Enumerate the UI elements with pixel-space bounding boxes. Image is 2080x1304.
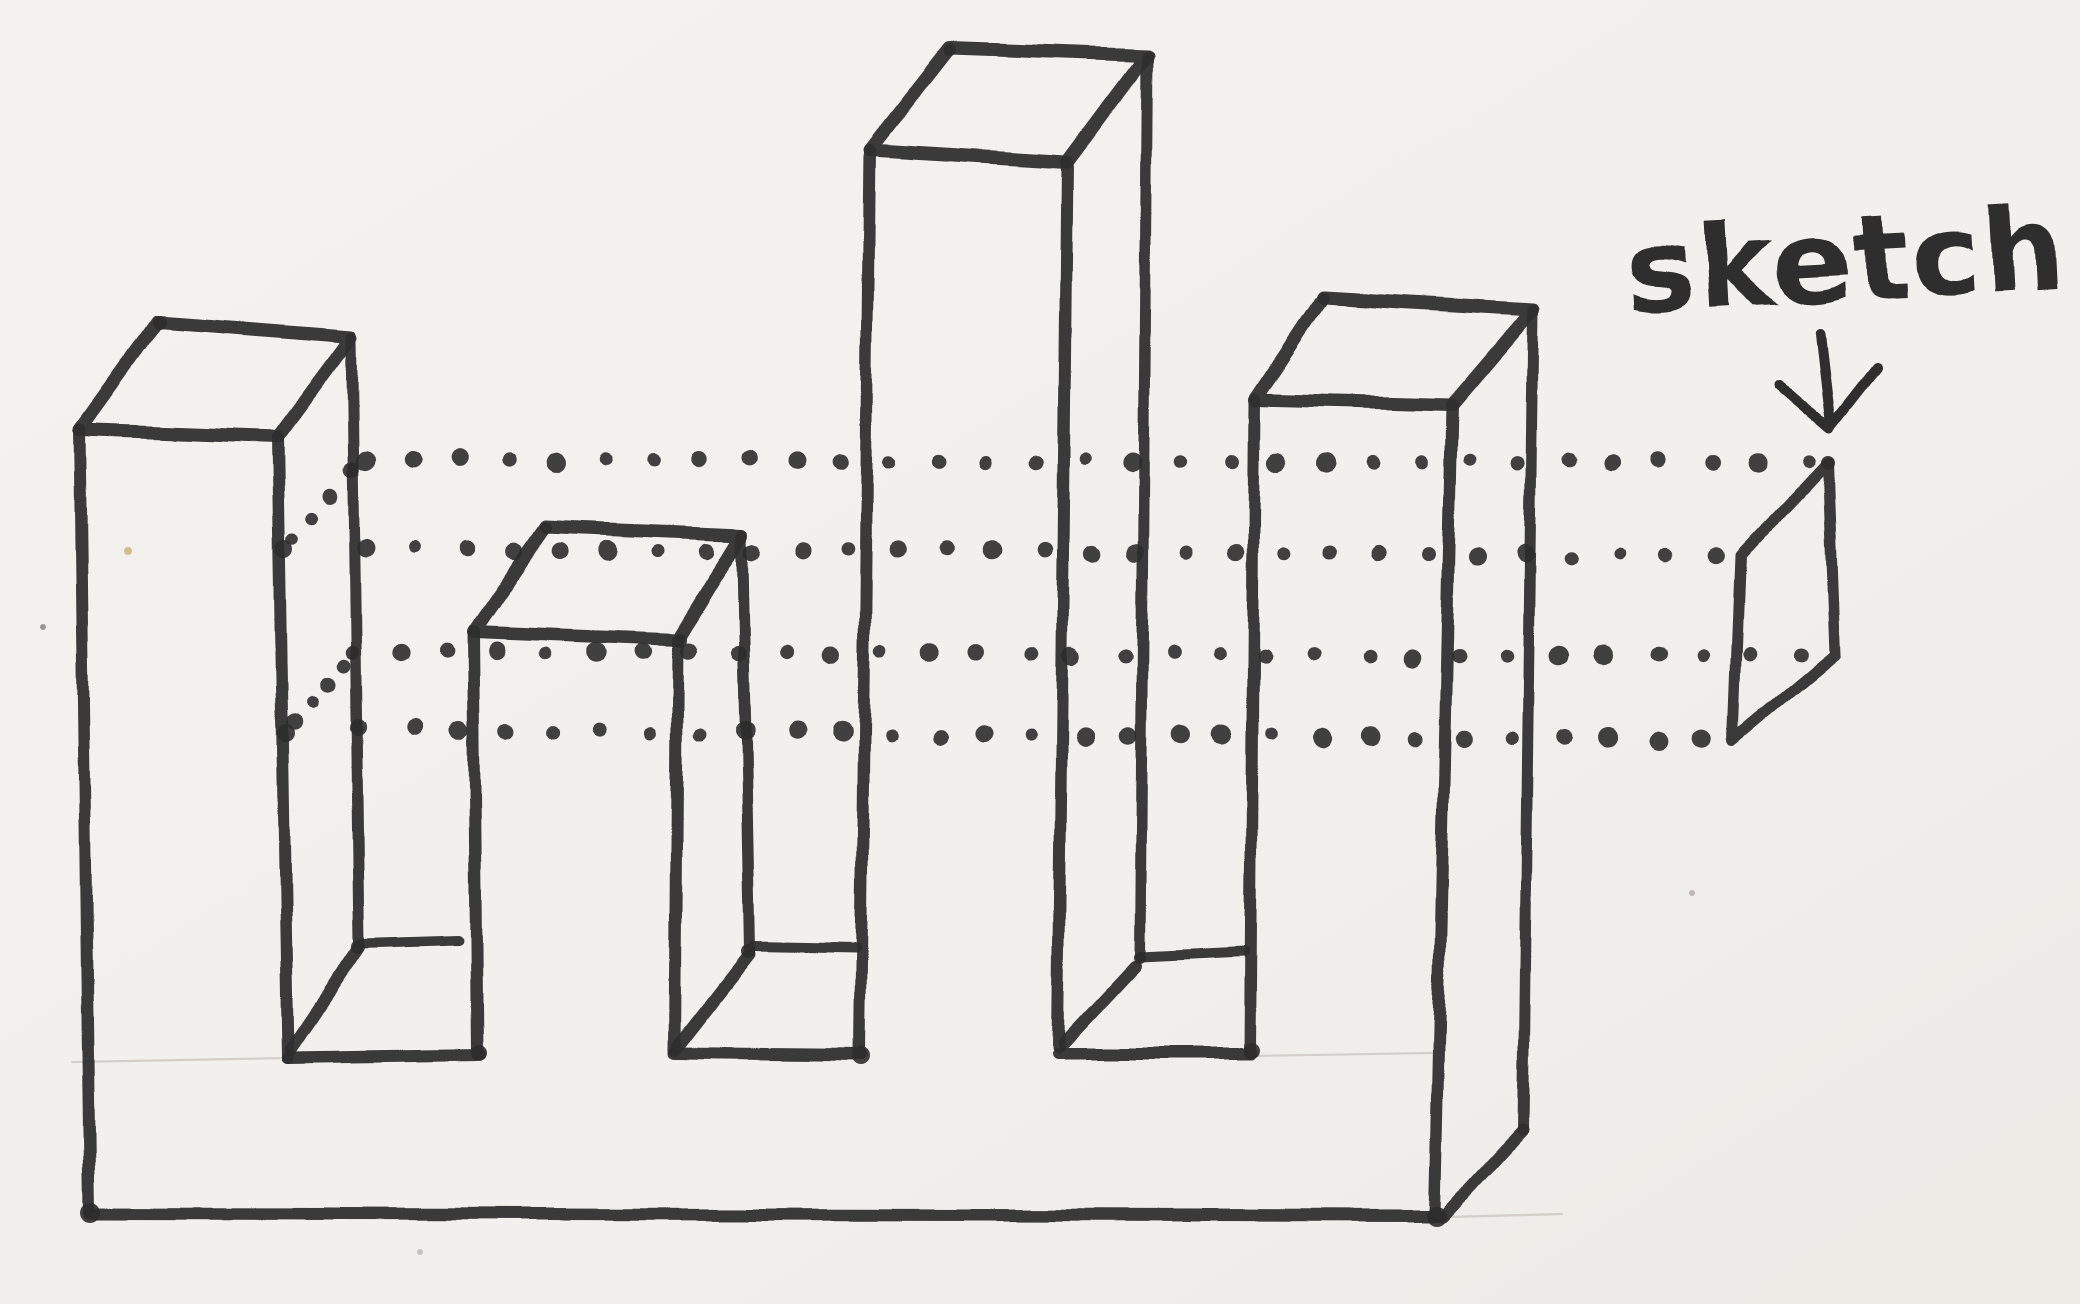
- projection-line-1-dot: [978, 457, 991, 470]
- projection-line-3-dot: [634, 644, 651, 661]
- projection-line-4-dot: [933, 728, 949, 744]
- projection-line-1-dot: [1803, 454, 1816, 467]
- projection-line-4-dot: [1693, 728, 1712, 747]
- projection-line-2-dot: [1423, 547, 1436, 560]
- projection-line-1-dot: [1122, 453, 1141, 472]
- projection-line-4-dot: [500, 724, 516, 740]
- projection-line-4-dot: [1556, 730, 1572, 746]
- projection-line-3-dot: [391, 642, 409, 660]
- projection-line-2-dot: [651, 545, 664, 558]
- projection-line-2-dot: [552, 543, 568, 559]
- ink-blob: [471, 1045, 487, 1061]
- projection-line-1-dot: [404, 451, 422, 469]
- tower-3-back-right-edge: [1140, 55, 1147, 955]
- projection-line-1-dot: [741, 450, 757, 466]
- ink-blob: [1821, 456, 1835, 470]
- projection-line-2-dot: [1614, 548, 1626, 560]
- paper-speck: [124, 547, 132, 555]
- ink-blob: [351, 940, 365, 954]
- ink-blob: [944, 44, 956, 56]
- projection-line-1-dot: [1315, 453, 1335, 473]
- projection-line-1-dot: [502, 453, 516, 467]
- projection-line-2-dot: [507, 543, 524, 560]
- projection-line-1-dot: [1510, 455, 1524, 469]
- projection-line-1-dot: [547, 452, 567, 472]
- projection-line-4-dot: [1456, 731, 1473, 748]
- ink-blob: [153, 316, 167, 330]
- paper-background: [0, 0, 2080, 1304]
- projection-line-2-dot: [699, 543, 715, 559]
- projection-line-4-dot: [1075, 727, 1094, 746]
- projection-line-3-dot: [346, 644, 360, 658]
- projection-line-3-dot: [1257, 649, 1271, 663]
- projection-line-1-dot: [1562, 453, 1576, 467]
- ink-blob: [80, 1203, 100, 1223]
- paper-speck: [417, 1249, 423, 1255]
- projection-line-3-dot: [440, 643, 455, 658]
- ink-blob: [1244, 1043, 1260, 1059]
- projection-line-1-dot: [1268, 453, 1286, 471]
- projection-line-3-dot: [1167, 645, 1181, 659]
- projection-line-3-dot: [1213, 648, 1226, 661]
- projection-line-2-dot: [1181, 546, 1195, 560]
- projection-line-4-dot: [977, 725, 995, 743]
- projection-line-2-dot: [1083, 546, 1100, 563]
- notch-2-floor-front-edge: [675, 1053, 862, 1055]
- projection-line-4-dot: [788, 723, 806, 741]
- projection-line-3-dot: [782, 644, 796, 658]
- projection-line-3-dot: [875, 646, 888, 659]
- projection-line-2-dot: [795, 542, 812, 559]
- projection-line-2-dot: [1279, 548, 1292, 561]
- projection-line-4-dot: [1025, 730, 1037, 742]
- projection-line-3-dot: [1451, 649, 1465, 663]
- projection-line-1-dot: [1366, 455, 1380, 469]
- projection-line-4-dot: [1265, 728, 1278, 741]
- projection-line-2-dot: [1229, 544, 1246, 561]
- projection-line-1-dot: [789, 451, 807, 469]
- paper-speck: [1689, 890, 1695, 896]
- projection-line-3-dot: [921, 644, 941, 664]
- projection-line-1-dot: [1080, 453, 1092, 465]
- projection-lead-in-upper-dot: [344, 461, 360, 477]
- projection-line-4-dot: [1363, 727, 1383, 747]
- notch-1-floor-back-edge: [362, 941, 458, 944]
- projection-line-3-dot: [1650, 646, 1666, 662]
- projection-line-4-dot: [1597, 727, 1617, 747]
- projection-line-1-dot: [1604, 454, 1621, 471]
- projection-line-4-dot: [593, 723, 607, 737]
- projection-line-3-dot: [823, 646, 841, 664]
- projection-line-1-dot: [1704, 454, 1719, 469]
- projection-line-4-dot: [405, 720, 422, 737]
- projection-line-4-dot: [1650, 731, 1669, 750]
- projection-lead-in-lower-dot: [321, 675, 337, 691]
- projection-line-2-dot: [1468, 548, 1487, 567]
- tower-2-front-right-edge: [675, 640, 678, 1050]
- projection-line-3-dot: [1794, 648, 1808, 662]
- projection-line-3-dot: [1062, 647, 1080, 665]
- projection-line-4-dot: [1120, 727, 1137, 744]
- projection-line-3-dot: [732, 645, 747, 660]
- tower-4-front-left-edge: [1250, 400, 1255, 1052]
- projection-line-1-dot: [691, 451, 707, 467]
- projection-line-1-dot: [1463, 454, 1475, 466]
- projection-line-1-dot: [1173, 455, 1186, 468]
- projection-line-4-dot: [736, 722, 756, 742]
- projection-lead-in-lower-dot: [307, 696, 320, 709]
- paper-speck: [40, 624, 46, 630]
- projection-line-1-dot: [883, 456, 896, 469]
- projection-line-4-dot: [450, 723, 468, 741]
- projection-line-2-dot: [940, 542, 955, 557]
- projection-line-2-dot: [1707, 547, 1724, 564]
- projection-line-2-dot: [744, 544, 760, 560]
- projection-line-4-dot: [644, 726, 656, 738]
- ink-blob: [274, 540, 292, 558]
- projection-line-3-dot: [1307, 648, 1320, 661]
- projection-line-3-dot: [1362, 649, 1375, 662]
- projection-line-2-dot: [459, 540, 475, 556]
- projection-line-2-dot: [1563, 550, 1577, 564]
- ink-blob: [1318, 293, 1330, 305]
- projection-line-3-dot: [1119, 649, 1133, 663]
- projection-line-2-dot: [1371, 545, 1387, 561]
- projection-line-2-dot: [1322, 545, 1336, 559]
- projection-line-4-dot: [1213, 725, 1232, 744]
- projection-line-2-dot: [983, 541, 1002, 560]
- ink-blob: [852, 1046, 870, 1064]
- sketch-label: sketch: [1622, 182, 2069, 340]
- projection-line-2-dot: [357, 539, 375, 557]
- projection-line-2-dot: [1126, 543, 1144, 561]
- projection-line-1-dot: [646, 455, 659, 468]
- projection-line-1-dot: [1651, 453, 1667, 469]
- projection-line-4-dot: [1172, 725, 1191, 744]
- projection-line-1-dot: [1225, 455, 1239, 469]
- projection-line-2-dot: [889, 541, 906, 558]
- projection-line-1-dot: [932, 455, 946, 469]
- ink-blob: [673, 634, 687, 648]
- projection-line-4-dot: [547, 727, 560, 740]
- projection-line-3-dot: [1593, 645, 1613, 665]
- projection-line-4-dot: [694, 727, 707, 740]
- projection-line-3-dot: [1743, 648, 1757, 662]
- projection-line-2-dot: [1037, 542, 1053, 558]
- projection-line-3-dot: [540, 648, 552, 660]
- tower-2-front-left-edge: [473, 632, 477, 1053]
- ink-blob: [741, 944, 755, 958]
- ink-blob: [1134, 952, 1146, 964]
- ink-blob: [277, 724, 295, 742]
- projection-line-3-dot: [1549, 645, 1569, 665]
- ink-blob: [540, 522, 552, 534]
- projection-line-1-dot: [1031, 456, 1045, 470]
- notch-3-floor-back-edge: [1140, 951, 1245, 956]
- projection-line-3-dot: [1500, 648, 1514, 662]
- projection-line-4-dot: [885, 728, 897, 740]
- projection-line-3-dot: [1402, 648, 1420, 666]
- notch-1-floor-front-edge: [288, 1055, 480, 1058]
- notch-2-floor-back-edge: [753, 946, 856, 948]
- projection-line-4-dot: [350, 720, 367, 737]
- projection-line-4-dot: [831, 722, 851, 742]
- projection-line-4-dot: [1409, 732, 1423, 746]
- sketch-canvas: sketch: [0, 0, 2080, 1304]
- projection-line-1-dot: [451, 448, 469, 466]
- projection-line-3-dot: [1697, 651, 1710, 664]
- projection-line-4-dot: [1313, 729, 1333, 749]
- projection-line-3-dot: [1023, 646, 1037, 660]
- ink-blob: [1427, 1207, 1447, 1227]
- projection-lead-in-lower-dot: [337, 657, 351, 671]
- projection-lead-in-upper-dot: [323, 488, 339, 504]
- base-bottom-front-edge: [90, 1213, 1437, 1216]
- projection-line-2-dot: [842, 542, 855, 555]
- projection-line-4-dot: [1506, 732, 1519, 745]
- projection-line-1-dot: [1416, 456, 1429, 469]
- projection-line-3-dot: [489, 642, 507, 660]
- projection-line-1-dot: [833, 455, 849, 471]
- projection-line-1-dot: [1749, 453, 1768, 472]
- projection-lead-in-upper-dot: [305, 511, 318, 524]
- projection-line-2-dot: [597, 540, 617, 560]
- projection-line-2-dot: [407, 540, 419, 552]
- scanned-paper-sketch: sketch: [0, 0, 2080, 1304]
- projection-line-1-dot: [600, 452, 613, 465]
- projection-line-2-dot: [1658, 549, 1672, 563]
- projection-line-3-dot: [586, 642, 605, 661]
- projection-line-2-dot: [1517, 545, 1535, 563]
- projection-line-3-dot: [969, 644, 985, 660]
